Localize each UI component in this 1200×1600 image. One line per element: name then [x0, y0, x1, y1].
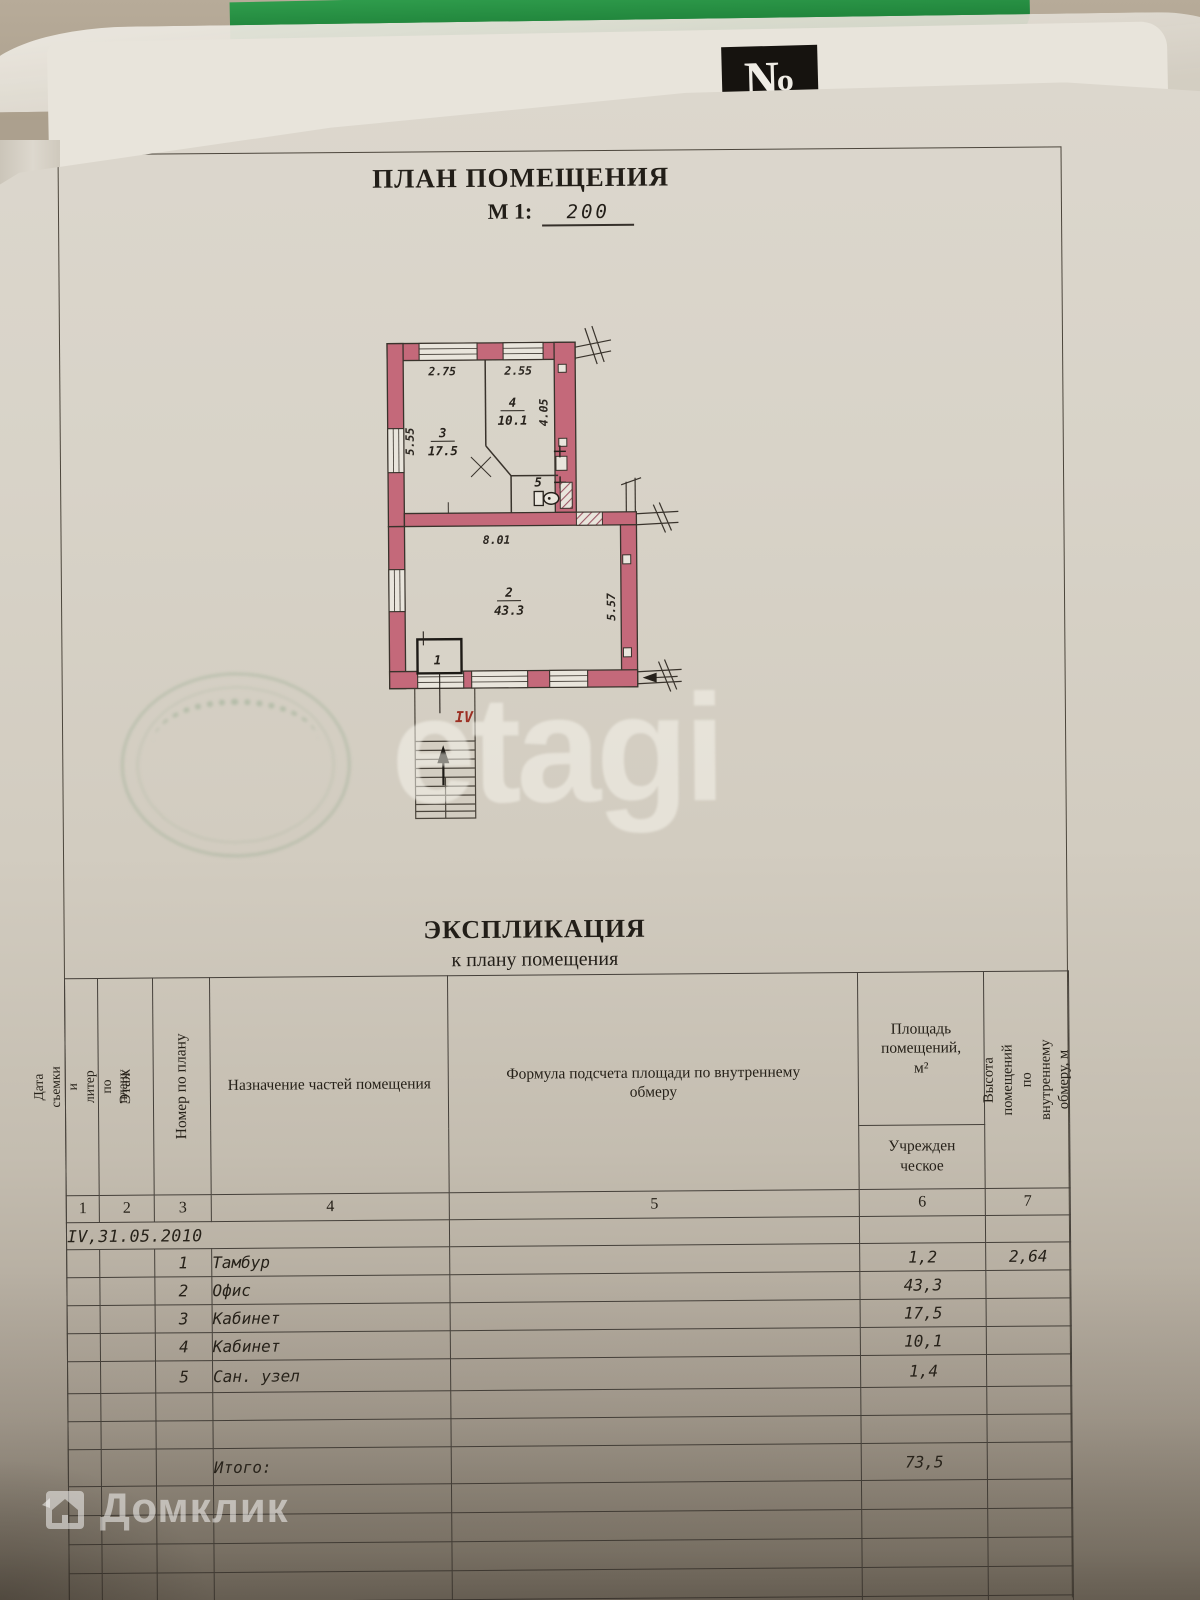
explication-subtitle: к плану помещения: [375, 947, 695, 973]
col-number-on-plan: Номер по плану: [152, 978, 211, 1195]
col-formula: Формула подсчета площади по внутреннему …: [447, 973, 859, 1193]
row-height: 2,64: [986, 1242, 1071, 1271]
plan-scale: М 1:200: [431, 197, 691, 227]
room5-number: 5: [534, 474, 542, 489]
row-height: [986, 1270, 1071, 1299]
col-purpose: Назначение частей помещения: [209, 976, 449, 1195]
total-value: 73,5: [861, 1443, 987, 1481]
total-label: Итого:: [213, 1447, 451, 1486]
room2-number: 2: [504, 585, 513, 600]
door-swing: [448, 457, 491, 513]
row-height: [986, 1326, 1071, 1355]
scale-label: М 1:: [488, 199, 533, 224]
room2-area: 43.3: [494, 603, 524, 618]
room4-area: 10.1: [498, 413, 528, 428]
photographed-document-scene: № ПЛАН ПОМЕЩЕНИЯ М 1:200: [0, 0, 1200, 1600]
col-date-liter: Дата съемки и литер по плану: [64, 978, 99, 1195]
domclick-house-icon: [40, 1485, 86, 1531]
dim-mid: 8.01: [483, 533, 511, 547]
row-area: 1,2: [860, 1243, 986, 1272]
room3-number: 3: [438, 425, 447, 440]
dim-top-left: 2.75: [427, 364, 456, 378]
row-num: 3: [155, 1305, 212, 1333]
toilet-icon: [534, 491, 559, 505]
partitions: [485, 359, 558, 513]
row-height: [986, 1354, 1071, 1387]
row-area: 1,4: [860, 1355, 986, 1388]
row-area: 43,3: [860, 1271, 986, 1300]
explication-title: ЭКСПЛИКАЦИЯ: [375, 913, 695, 946]
dim-right-top: 4.05: [536, 398, 550, 426]
etagi-watermark: etagi: [391, 673, 722, 826]
row-area: 10,1: [860, 1327, 986, 1356]
row-area: 17,5: [860, 1299, 986, 1328]
area-units: м²: [859, 1058, 984, 1078]
row-height: [986, 1298, 1071, 1327]
date-liter-value: IV,31.05.2010: [66, 1220, 449, 1250]
domclick-watermark: Домклик: [40, 1484, 289, 1532]
scale-value: 200: [542, 201, 634, 227]
document-paper: ПЛАН ПОМЕЩЕНИЯ М 1:200: [0, 81, 1200, 1600]
col-date-liter-line1: Дата съемки и: [31, 1066, 82, 1108]
row-num: 5: [156, 1361, 213, 1393]
dim-top-right: 2.55: [503, 364, 532, 378]
row-name: Офис: [212, 1275, 450, 1305]
row-num: 1: [155, 1249, 212, 1277]
round-stamp: [121, 672, 351, 858]
row-name: Кабинет: [212, 1303, 450, 1333]
col-area-subheader: Учрежден ческое: [859, 1124, 986, 1189]
dim-right-bottom: 5.57: [604, 593, 618, 621]
row-name: Тамбур: [212, 1247, 450, 1277]
row-name: Кабинет: [212, 1331, 450, 1361]
room4-number: 4: [509, 395, 517, 410]
domclick-label: Домклик: [100, 1484, 289, 1532]
col-height: Высота помещений по внутреннему обмеру, …: [983, 971, 1070, 1189]
row-num: 4: [155, 1333, 212, 1361]
dim-left: 5.55: [403, 428, 417, 456]
row-name: Сан. узел: [212, 1359, 450, 1393]
row-num: 2: [155, 1277, 212, 1305]
room3-area: 17.5: [428, 443, 459, 458]
col-area: Площадь помещений, м²: [857, 972, 984, 1126]
page-title: ПЛАН ПОМЕЩЕНИЯ: [331, 161, 711, 195]
